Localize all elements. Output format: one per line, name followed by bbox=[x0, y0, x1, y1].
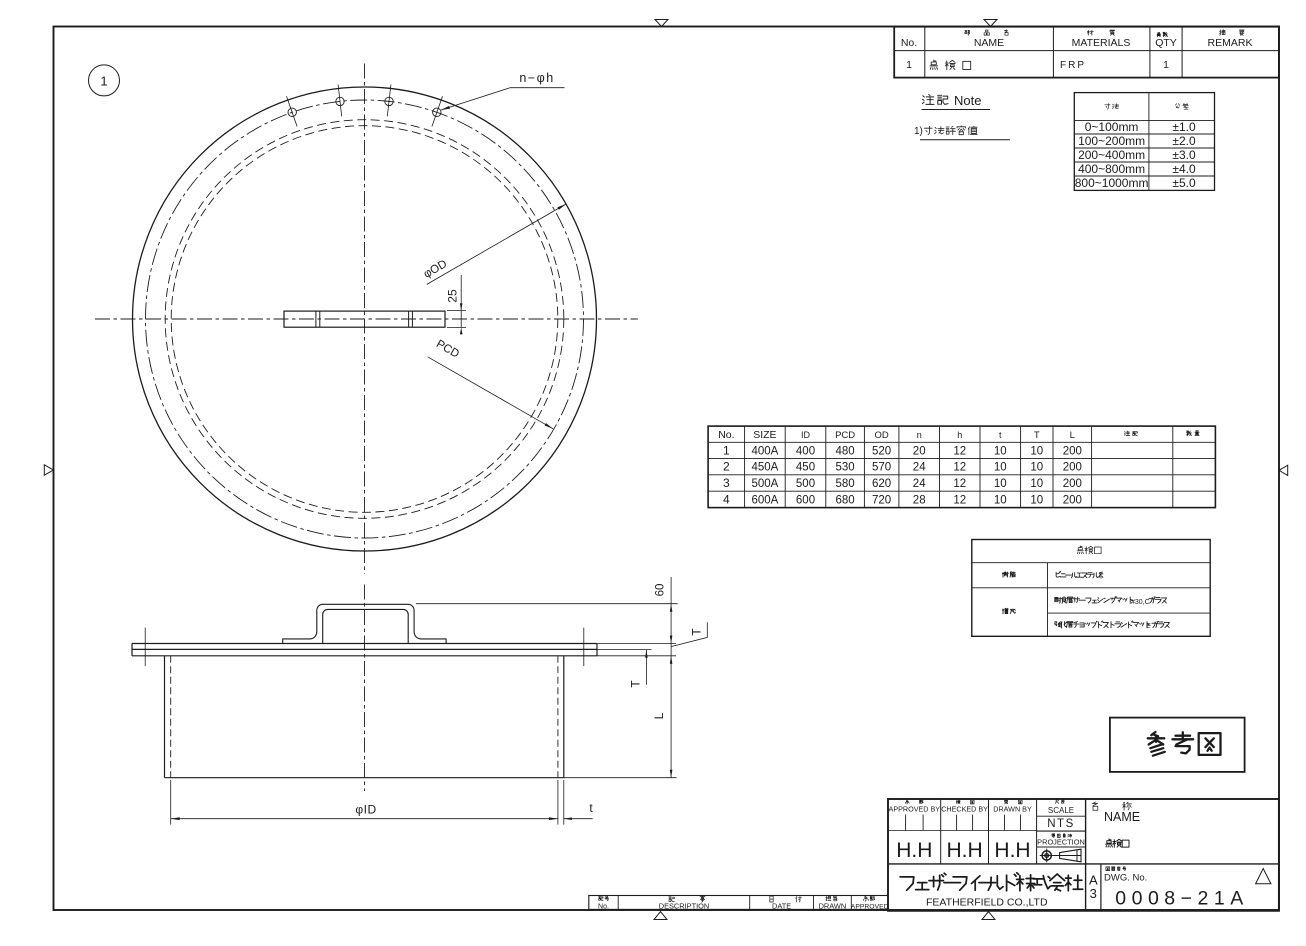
svg-text:PCD: PCD bbox=[835, 430, 855, 441]
svg-text:20: 20 bbox=[913, 446, 926, 458]
svg-text:No.: No. bbox=[718, 429, 734, 441]
svg-text:SIZE: SIZE bbox=[753, 429, 776, 441]
svg-text:600: 600 bbox=[796, 494, 815, 506]
svg-text:NAME: NAME bbox=[974, 37, 1004, 49]
svg-text:24: 24 bbox=[913, 462, 926, 474]
svg-text:APPROVED BY: APPROVED BY bbox=[889, 805, 941, 814]
svg-text:FEATHERFIELD CO.,LTD: FEATHERFIELD CO.,LTD bbox=[926, 897, 1048, 909]
svg-text:FRP: FRP bbox=[1060, 60, 1086, 71]
svg-text:MATERIALS: MATERIALS bbox=[1072, 37, 1131, 49]
svg-text:520: 520 bbox=[872, 446, 891, 458]
svg-text:28: 28 bbox=[913, 494, 926, 506]
svg-text:24: 24 bbox=[913, 478, 926, 490]
svg-text:E: E bbox=[1146, 623, 1151, 630]
svg-text:200~400mm: 200~400mm bbox=[1078, 148, 1145, 162]
svg-text:4: 4 bbox=[723, 492, 730, 506]
svg-text:REMARK: REMARK bbox=[1208, 37, 1253, 49]
svg-text:n−φh: n−φh bbox=[519, 71, 554, 85]
svg-text:500A: 500A bbox=[751, 478, 778, 490]
svg-text:1: 1 bbox=[1163, 59, 1169, 71]
svg-text:0~100mm: 0~100mm bbox=[1085, 120, 1139, 134]
svg-text:10: 10 bbox=[994, 494, 1007, 506]
svg-text:T: T bbox=[690, 628, 704, 636]
svg-text:NTS: NTS bbox=[1047, 818, 1075, 830]
svg-text:3: 3 bbox=[1090, 886, 1097, 901]
svg-text:12: 12 bbox=[953, 478, 966, 490]
svg-text:1: 1 bbox=[723, 444, 730, 458]
svg-text:0008−21A: 0008−21A bbox=[1115, 888, 1248, 910]
svg-text:12: 12 bbox=[953, 446, 966, 458]
svg-text:L: L bbox=[652, 712, 666, 719]
svg-text:±1.0: ±1.0 bbox=[1172, 120, 1196, 134]
svg-text:10: 10 bbox=[1030, 478, 1043, 490]
svg-text:3: 3 bbox=[723, 476, 730, 490]
svg-text:800~1000mm: 800~1000mm bbox=[1075, 176, 1149, 190]
svg-text:PROJECTION: PROJECTION bbox=[1037, 838, 1085, 847]
svg-text:1: 1 bbox=[906, 59, 912, 71]
svg-text:200: 200 bbox=[1063, 494, 1082, 506]
svg-text:DRAWN: DRAWN bbox=[819, 902, 847, 911]
svg-text:T: T bbox=[1034, 430, 1040, 441]
svg-text:10: 10 bbox=[1030, 462, 1043, 474]
svg-text:100~200mm: 100~200mm bbox=[1078, 134, 1145, 148]
svg-text:200: 200 bbox=[1063, 478, 1082, 490]
svg-text:NAME: NAME bbox=[1104, 810, 1140, 824]
svg-text:H.H: H.H bbox=[994, 839, 1030, 862]
svg-text:600A: 600A bbox=[751, 494, 778, 506]
svg-text:25: 25 bbox=[446, 289, 460, 303]
svg-text:2: 2 bbox=[723, 460, 730, 474]
svg-text:DATE: DATE bbox=[772, 902, 791, 911]
svg-text:DESCRIPTION: DESCRIPTION bbox=[659, 902, 710, 911]
svg-text:480: 480 bbox=[836, 446, 855, 458]
svg-text:400A: 400A bbox=[751, 446, 778, 458]
svg-text:h: h bbox=[957, 430, 962, 440]
svg-text:200: 200 bbox=[1063, 446, 1082, 458]
svg-text:12: 12 bbox=[953, 462, 966, 474]
svg-text:#30,C: #30,C bbox=[1131, 599, 1150, 606]
svg-text:QTY: QTY bbox=[1155, 37, 1177, 49]
svg-text:400: 400 bbox=[796, 446, 815, 458]
svg-text:n: n bbox=[917, 430, 922, 440]
svg-text:±4.0: ±4.0 bbox=[1172, 162, 1196, 176]
svg-text:10: 10 bbox=[994, 462, 1007, 474]
svg-text:10: 10 bbox=[994, 446, 1007, 458]
svg-text:No.: No. bbox=[901, 37, 917, 49]
svg-text:±3.0: ±3.0 bbox=[1172, 148, 1196, 162]
svg-text:620: 620 bbox=[872, 478, 891, 490]
svg-text:1): 1) bbox=[914, 126, 923, 137]
svg-text:530: 530 bbox=[836, 462, 855, 474]
svg-text:T: T bbox=[629, 680, 643, 688]
svg-text:±5.0: ±5.0 bbox=[1172, 176, 1196, 190]
svg-text:DRAWN BY: DRAWN BY bbox=[993, 805, 1032, 814]
svg-text:L: L bbox=[1070, 430, 1075, 441]
svg-text:500: 500 bbox=[796, 478, 815, 490]
svg-text:DWG. No.: DWG. No. bbox=[1104, 873, 1147, 884]
svg-text:10: 10 bbox=[1030, 446, 1043, 458]
svg-text:φID: φID bbox=[355, 803, 376, 817]
svg-text:1: 1 bbox=[100, 74, 107, 89]
svg-text:680: 680 bbox=[836, 494, 855, 506]
svg-text:10: 10 bbox=[1030, 494, 1043, 506]
svg-text:CHECKED BY: CHECKED BY bbox=[941, 805, 988, 814]
svg-text:H.H: H.H bbox=[896, 839, 932, 862]
svg-text:Note: Note bbox=[954, 93, 981, 108]
svg-text:±2.0: ±2.0 bbox=[1172, 134, 1196, 148]
svg-text:60: 60 bbox=[655, 584, 667, 597]
svg-text:200: 200 bbox=[1063, 462, 1082, 474]
svg-text:400~800mm: 400~800mm bbox=[1078, 162, 1145, 176]
svg-text:ID: ID bbox=[801, 430, 811, 440]
svg-text:580: 580 bbox=[836, 478, 855, 490]
svg-text:H.H: H.H bbox=[947, 839, 983, 862]
svg-text:12: 12 bbox=[953, 494, 966, 506]
svg-text:APPROVED: APPROVED bbox=[851, 904, 889, 911]
svg-text:10: 10 bbox=[994, 478, 1007, 490]
svg-text:570: 570 bbox=[872, 462, 891, 474]
svg-text:OD: OD bbox=[874, 430, 888, 441]
svg-text:720: 720 bbox=[872, 494, 891, 506]
svg-text:No.: No. bbox=[598, 903, 609, 910]
svg-text:450: 450 bbox=[796, 462, 815, 474]
svg-text:450A: 450A bbox=[751, 462, 778, 474]
svg-text:SCALE: SCALE bbox=[1048, 806, 1074, 815]
